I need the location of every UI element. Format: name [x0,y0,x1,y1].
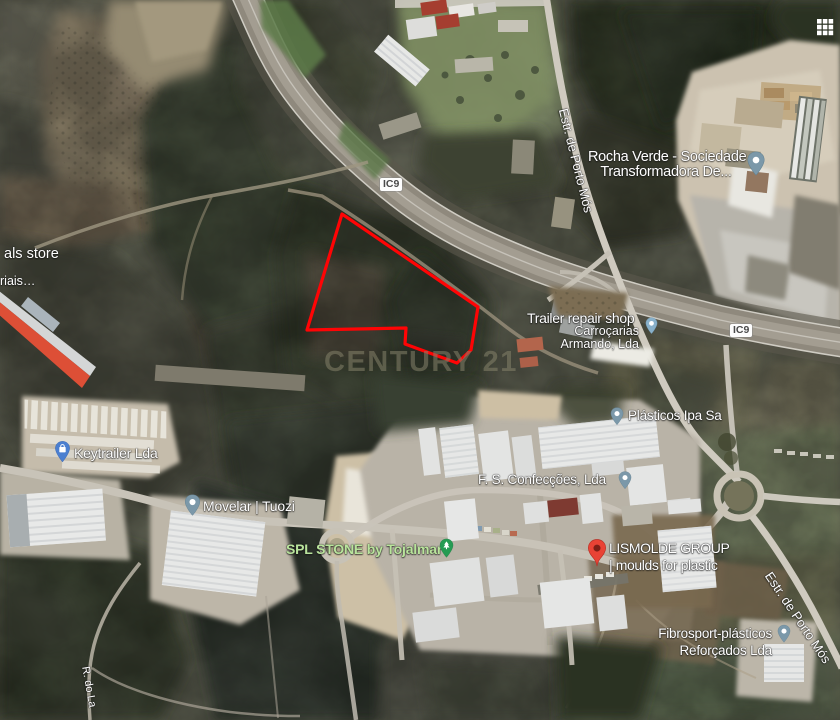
svg-text:CENTURY 21: CENTURY 21 [324,346,518,378]
